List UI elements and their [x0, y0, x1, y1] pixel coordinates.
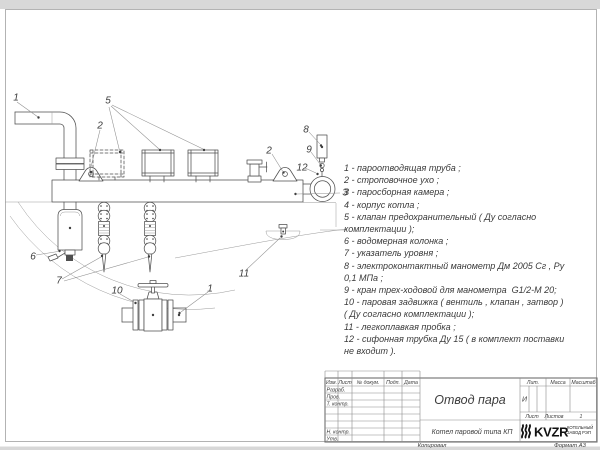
column-data: Дата — [403, 380, 418, 386]
sheet-label: Лист — [524, 414, 539, 420]
copied-label: Копировал — [418, 443, 448, 449]
page-top-margin — [0, 0, 600, 9]
parts-list-item-3: 3 - паросборная камера ; — [344, 186, 580, 198]
parts-list-item-7: 7 - указатель уровня ; — [344, 247, 580, 259]
format-label: Формат А3 — [554, 443, 586, 449]
drum-valve — [247, 160, 267, 182]
pressure-gauge-assembly — [317, 135, 327, 177]
callout-7: 7 — [56, 276, 62, 287]
callout-11: 11 — [239, 269, 249, 280]
page-bottom-margin — [0, 447, 600, 450]
level-gauges — [98, 202, 156, 272]
parts-list-item-9: 9 - кран трех-ходовой для манометра G1/2… — [344, 284, 580, 296]
callout-5: 5 — [105, 96, 111, 107]
sheets-label: Листов — [544, 414, 564, 420]
liter-value: И — [522, 397, 528, 404]
logo-caption-2: ЗАВОД РЭП — [567, 430, 591, 435]
kvzr-logo: KVZR КОТЕЛЬНЫЙ ЗАВОД РЭП — [522, 425, 593, 440]
parts-list-item-8: 8 - электроконтактный манометр Дм 2005 С… — [344, 260, 580, 284]
column-list: Лист — [337, 380, 352, 386]
parts-list-item-4: 4 - корпус котла ; — [344, 199, 580, 211]
safety-valves — [90, 150, 218, 182]
parts-list-item-5: 5 - клапан предохранительный ( Ду соглас… — [344, 211, 580, 235]
scale-label: Масштаб — [571, 380, 596, 386]
bottom-valve — [122, 281, 186, 332]
row-nkontr: Н. контр. — [327, 429, 350, 435]
drawing-subtitle: Котел паровой типа КП — [432, 428, 514, 436]
callout-2: 2 — [266, 146, 272, 157]
column-podp: Подп. — [386, 380, 400, 386]
steam-pipe — [15, 112, 84, 180]
logo-text: KVZR — [534, 425, 569, 440]
row-utv: Утв. — [327, 436, 339, 442]
parts-list: 1 - пароотводящая труба ;2 - строповочно… — [344, 162, 580, 357]
row-tkontr: Т. контр. — [327, 402, 349, 408]
parts-list-item-6: 6 - водомерная колонка ; — [344, 235, 580, 247]
callout-2: 2 — [97, 121, 103, 132]
drawing-title: Отвод пара — [434, 393, 506, 407]
callout-3: 3 — [342, 188, 348, 199]
leader-lines — [17, 102, 340, 314]
row-razrab: Разраб. — [327, 388, 346, 394]
row-prov: Пров. — [327, 395, 341, 401]
callout-8: 8 — [303, 125, 309, 136]
sheets-value: 1 — [580, 414, 583, 420]
callout-12: 12 — [296, 163, 307, 174]
drawing-sheet: Отвод пара Котел паровой типа КП Изм. Ли… — [0, 0, 600, 450]
fusible-plug — [266, 225, 300, 240]
column-izm: Изм. — [326, 380, 337, 386]
parts-list-item-2: 2 - строповочное ухо ; — [344, 174, 580, 186]
callout-9: 9 — [306, 145, 312, 156]
parts-list-item-11: 11 - легкоплавкая пробка ; — [344, 321, 580, 333]
parts-list-item-10: 10 - паровая задвижка ( вентиль , клапан… — [344, 296, 580, 320]
column-ndokum: № докум. — [357, 380, 380, 386]
steam-drum — [52, 180, 303, 202]
callout-1: 1 — [207, 284, 213, 295]
mass-label: Масса — [550, 380, 565, 386]
callout-1: 1 — [13, 93, 19, 104]
callout-10: 10 — [111, 286, 122, 297]
siphon-loop-ring — [303, 177, 335, 202]
parts-list-item-1: 1 - пароотводящая труба ; — [344, 162, 580, 174]
callout-6: 6 — [30, 252, 36, 263]
parts-list-item-12: 12 - сифонная трубка Ду 15 ( в комплект … — [344, 333, 580, 357]
title-block: Отвод пара Котел паровой типа КП Изм. Ли… — [325, 371, 597, 442]
liter-label: Лит. — [526, 380, 539, 386]
